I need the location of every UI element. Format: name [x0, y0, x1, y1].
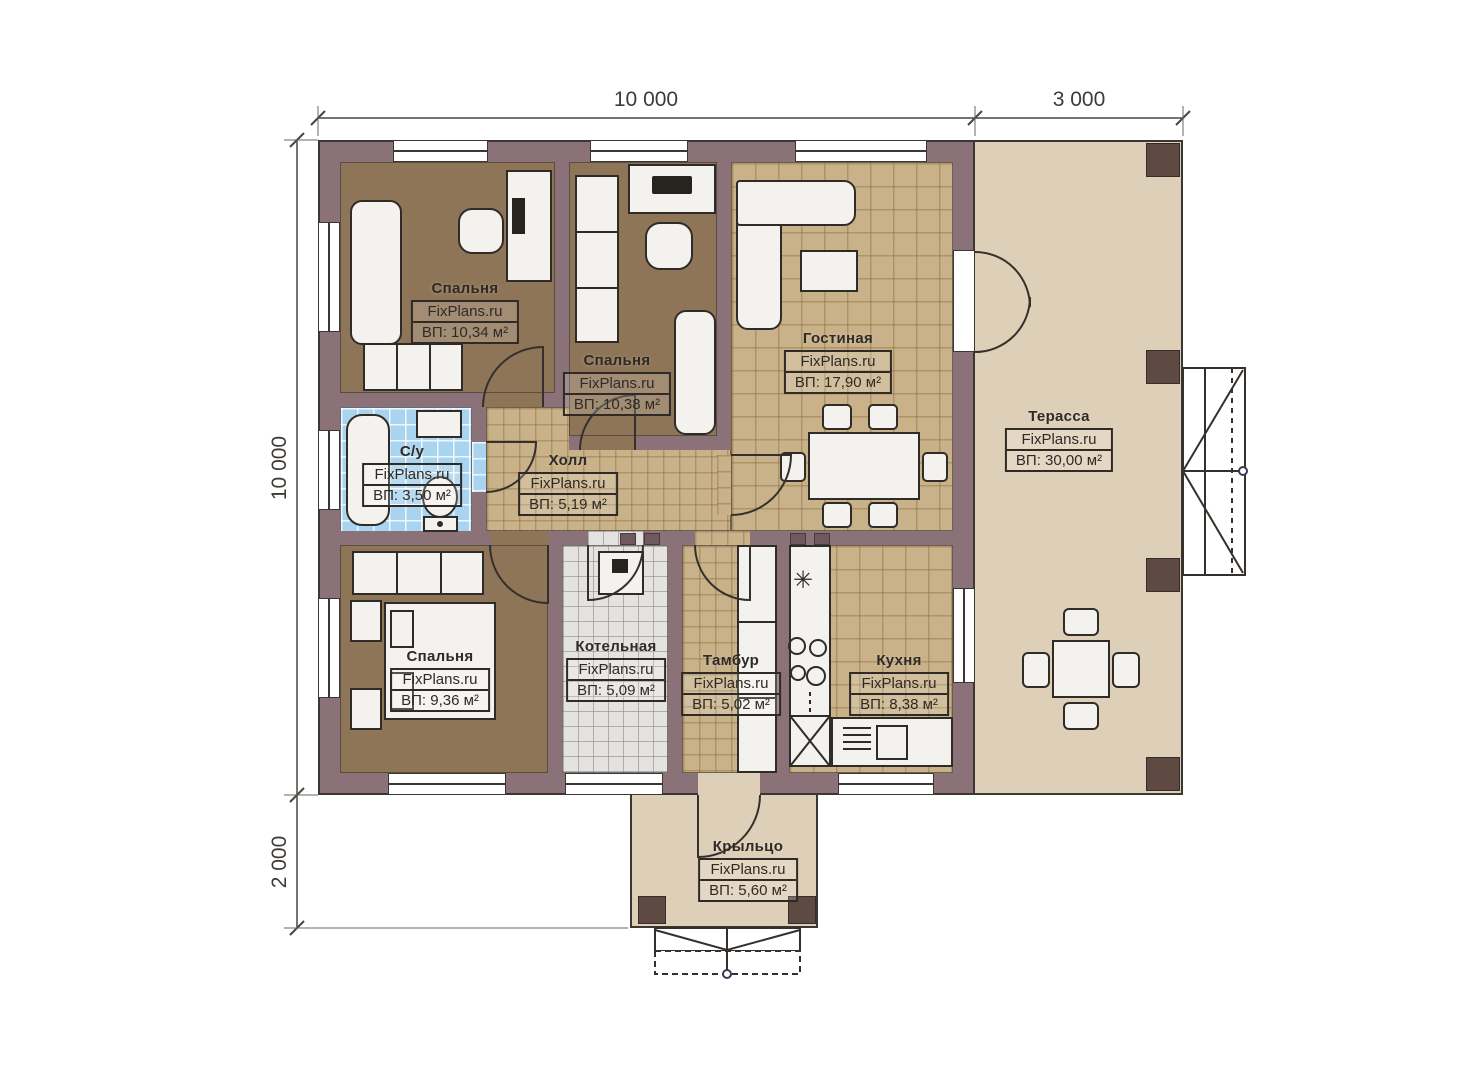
- window-kitchen-bottom: [838, 773, 934, 795]
- closet-bedroom3: [352, 551, 484, 595]
- door-opening-terrace: [953, 250, 975, 352]
- window-bedroom2-top: [590, 140, 688, 162]
- watermark: FixPlans.ru: [700, 860, 796, 879]
- kitchen-sink-unit: [789, 715, 831, 767]
- watermark: FixPlans.ru: [568, 660, 664, 679]
- sofa-bedroom2: [674, 310, 716, 435]
- kitchen-counter-left: [789, 545, 831, 717]
- room-label-boiler-room: Котельная FixPlans.ru ВП: 5,09 м²: [566, 638, 666, 702]
- window-living-top: [795, 140, 927, 162]
- watermark: FixPlans.ru: [1007, 430, 1111, 449]
- room-area: ВП: 9,36 м²: [392, 689, 488, 710]
- dresser-bedroom1: [363, 343, 463, 391]
- vent-kitchen: [790, 533, 806, 545]
- room-name: Терасса: [1005, 408, 1113, 425]
- post-terrace-mid-upper: [1146, 350, 1180, 384]
- room-label-bathroom: С/у FixPlans.ru ВП: 3,50 м²: [362, 443, 462, 507]
- room-label-hall: Холл FixPlans.ru ВП: 5,19 м²: [518, 452, 618, 516]
- post-terrace-mid-lower: [1146, 558, 1180, 592]
- room-area: ВП: 10,34 м²: [413, 321, 517, 342]
- porch-steps: [655, 928, 800, 978]
- nightstand: [350, 600, 382, 642]
- wall-boiler-vestibule: [668, 545, 682, 773]
- window-bedroom1-top: [393, 140, 488, 162]
- dim-label-top-main: 10 000: [614, 88, 678, 111]
- room-name: Тамбур: [681, 652, 781, 669]
- terrace-chair: [1063, 702, 1099, 730]
- corner-sofa-horizontal: [736, 180, 856, 226]
- window-bathroom-left: [318, 430, 340, 510]
- door-opening-bedroom2: [580, 436, 635, 450]
- dining-chair: [780, 452, 806, 482]
- room-label-terrace: Терасса FixPlans.ru ВП: 30,00 м²: [1005, 408, 1113, 472]
- room-area: ВП: 5,09 м²: [568, 679, 664, 700]
- room-name: Котельная: [566, 638, 666, 655]
- window-bedroom3-bottom: [388, 773, 506, 795]
- watermark: FixPlans.ru: [364, 465, 460, 484]
- watermark: FixPlans.ru: [786, 352, 890, 371]
- room-name: Крыльцо: [698, 838, 798, 855]
- chair-bedroom1: [458, 208, 504, 254]
- post-terrace-bottom: [1146, 757, 1180, 791]
- watermark: FixPlans.ru: [683, 674, 779, 693]
- terrace-stairs: [1183, 368, 1247, 575]
- dining-chair: [868, 404, 898, 430]
- dining-chair: [822, 502, 852, 528]
- wall-bedroom3-boiler: [548, 545, 562, 773]
- watermark: FixPlans.ru: [413, 302, 517, 321]
- room-name: С/у: [362, 443, 462, 460]
- window-boiler-bottom: [565, 773, 663, 795]
- coffee-table: [800, 250, 858, 292]
- dining-chair: [822, 404, 852, 430]
- room-area: ВП: 10,38 м²: [565, 393, 669, 414]
- boiler-unit: [598, 551, 644, 595]
- terrace-table: [1052, 640, 1110, 698]
- room-area: ВП: 5,02 м²: [683, 693, 779, 714]
- room-label-bedroom-bottom-left: Спальня FixPlans.ru ВП: 9,36 м²: [390, 648, 490, 712]
- dining-chair: [922, 452, 948, 482]
- post-porch-left: [638, 896, 666, 924]
- watermark: FixPlans.ru: [520, 474, 616, 493]
- terrace-chair: [1022, 652, 1050, 688]
- door-opening-vestibule: [695, 531, 750, 545]
- watermark: FixPlans.ru: [392, 670, 488, 689]
- door-opening-bedroom3: [490, 531, 548, 545]
- room-label-living-room: Гостиная FixPlans.ru ВП: 17,90 м²: [784, 330, 892, 394]
- vent-kitchen: [814, 533, 830, 545]
- room-area: ВП: 30,00 м²: [1007, 449, 1111, 470]
- room-name: Спальня: [411, 280, 519, 297]
- room-name: Спальня: [563, 352, 671, 369]
- terrace-chair: [1112, 652, 1140, 688]
- printer-icon: [652, 176, 692, 194]
- room-label-bedroom-top-middle: Спальня FixPlans.ru ВП: 10,38 м²: [563, 352, 671, 416]
- pillow: [390, 610, 414, 648]
- room-area: ВП: 5,60 м²: [700, 879, 796, 900]
- dining-chair: [868, 502, 898, 528]
- watermark: FixPlans.ru: [565, 374, 669, 393]
- room-area: ВП: 5,19 м²: [520, 493, 616, 514]
- boiler-panel-icon: [612, 559, 628, 573]
- window-bedroom1-left: [318, 222, 340, 332]
- dim-label-left-main: 10 000: [268, 436, 291, 500]
- vent-boiler: [620, 533, 636, 545]
- window-kitchen-right: [953, 588, 975, 683]
- door-opening-bathroom: [472, 442, 486, 492]
- sink: [416, 410, 462, 438]
- floor-plan: ✳ 10 000 3 000 10 000 2 000 Спальня F: [0, 0, 1473, 1080]
- room-label-vestibule: Тамбур FixPlans.ru ВП: 5,02 м²: [681, 652, 781, 716]
- room-label-porch: Крыльцо FixPlans.ru ВП: 5,60 м²: [698, 838, 798, 902]
- room-name: Гостиная: [784, 330, 892, 347]
- room-area: ВП: 8,38 м²: [851, 693, 947, 714]
- terrace-chair: [1063, 608, 1099, 636]
- door-opening-hall-living: [717, 455, 731, 515]
- watermark: FixPlans.ru: [851, 674, 947, 693]
- room-name: Кухня: [849, 652, 949, 669]
- wall-bedroom2-living: [717, 162, 731, 450]
- room-area: ВП: 3,50 м²: [364, 484, 460, 505]
- door-opening-bedroom1: [483, 393, 543, 407]
- chair-bedroom2: [645, 222, 693, 270]
- room-label-bedroom-top-left: Спальня FixPlans.ru ВП: 10,34 м²: [411, 280, 519, 344]
- nightstand: [350, 688, 382, 730]
- vent-boiler: [644, 533, 660, 545]
- wardrobe-bedroom2: [575, 175, 619, 343]
- kitchen-counter-bottom: [831, 717, 953, 767]
- computer-icon: [512, 198, 525, 234]
- room-area: ВП: 17,90 м²: [786, 371, 890, 392]
- dim-label-left-porch: 2 000: [268, 836, 291, 889]
- dim-label-top-terrace: 3 000: [1053, 88, 1106, 111]
- door-opening-porch: [698, 773, 760, 795]
- sofa-bedroom1: [350, 200, 402, 345]
- window-bedroom3-left: [318, 598, 340, 698]
- post-terrace-top: [1146, 143, 1180, 177]
- room-label-kitchen: Кухня FixPlans.ru ВП: 8,38 м²: [849, 652, 949, 716]
- dining-table: [808, 432, 920, 500]
- room-name: Холл: [518, 452, 618, 469]
- room-name: Спальня: [390, 648, 490, 665]
